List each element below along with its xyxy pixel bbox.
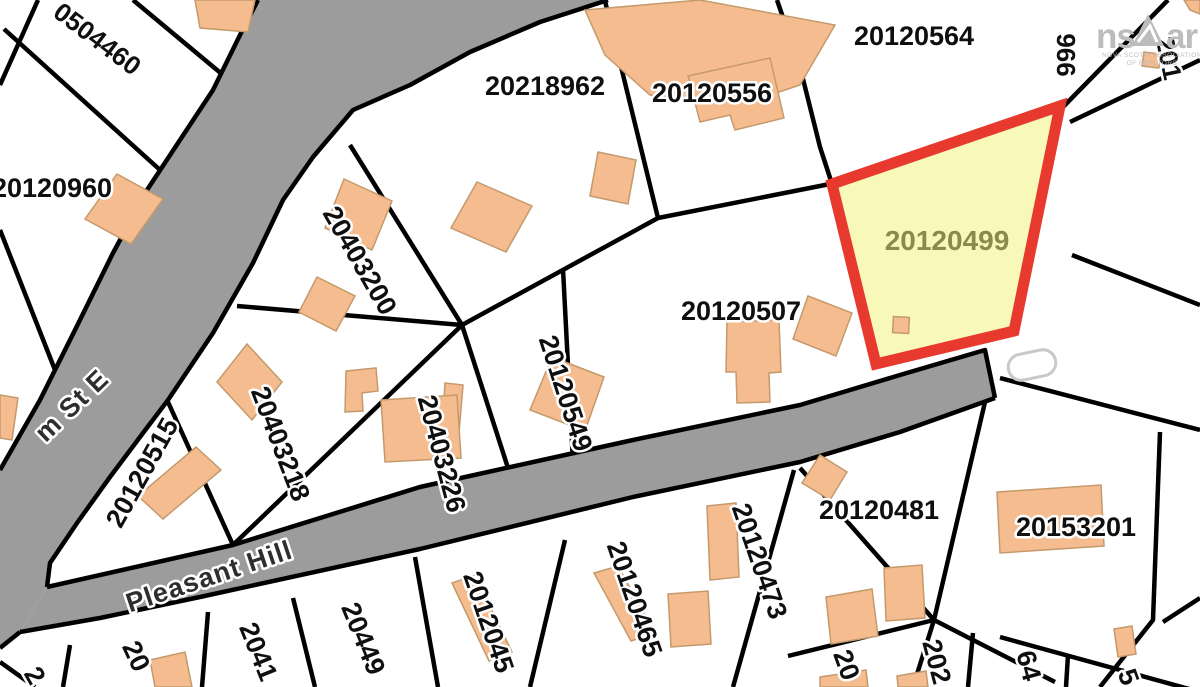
building bbox=[802, 455, 847, 500]
building bbox=[668, 591, 711, 647]
parcel-label: 2041 bbox=[233, 618, 283, 685]
parcel-label: 64 bbox=[1010, 647, 1047, 684]
building bbox=[793, 296, 852, 356]
driveway-loop bbox=[1006, 347, 1058, 382]
logo-text-right: ar bbox=[1166, 17, 1198, 56]
building bbox=[897, 671, 928, 687]
building bbox=[451, 182, 532, 252]
building bbox=[0, 395, 18, 440]
building bbox=[345, 368, 378, 412]
logo-text-left: ns bbox=[1096, 17, 1135, 56]
highlighted-parcel-label: 20120499 bbox=[885, 225, 1010, 256]
building bbox=[590, 152, 636, 204]
parcel-label: 20403218 bbox=[245, 382, 316, 505]
parcel-map[interactable]: 0504460 20120960 20218962 20120556 20120… bbox=[0, 0, 1200, 687]
parcel-label: 20120481 bbox=[819, 495, 939, 525]
building bbox=[826, 589, 878, 644]
logo-caption-line1: NOVA SCOTIA ASSOCIATION bbox=[1102, 52, 1200, 59]
parcel-label: 20218962 bbox=[485, 71, 605, 101]
building bbox=[299, 277, 355, 331]
building bbox=[893, 317, 910, 334]
parcel-label: 2012045 bbox=[457, 567, 520, 676]
parcel-label: 2 bbox=[18, 661, 51, 687]
parcel-label: 20120960 bbox=[0, 173, 112, 203]
logo-caption-line2: OF REALTORS bbox=[1127, 60, 1178, 67]
parcel-label: 20120564 bbox=[854, 21, 974, 51]
parcel-map-canvas[interactable]: 0504460 20120960 20218962 20120556 20120… bbox=[0, 0, 1200, 687]
parcel-label: 20449 bbox=[335, 598, 391, 679]
parcel-label: 20120507 bbox=[681, 296, 801, 326]
parcel-label: 966 bbox=[1051, 33, 1081, 76]
building bbox=[884, 565, 925, 621]
parcel-label: 20120556 bbox=[652, 78, 772, 108]
parcel-label: 20 bbox=[116, 636, 156, 676]
parcel-label: 0504460 bbox=[48, 0, 147, 81]
building bbox=[1114, 626, 1136, 657]
building bbox=[726, 320, 781, 403]
building bbox=[195, 0, 255, 32]
parcel-label: 20153201 bbox=[1016, 512, 1136, 542]
building bbox=[1184, 0, 1200, 14]
building bbox=[150, 652, 192, 687]
